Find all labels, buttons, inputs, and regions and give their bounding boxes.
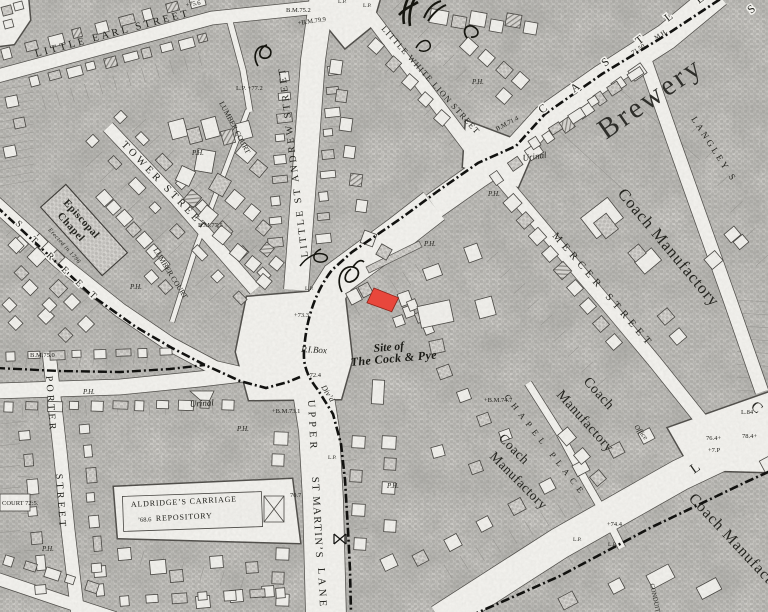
svg-text:B.M.77.5: B.M.77.5 xyxy=(198,222,223,229)
svg-text:P.H.: P.H. xyxy=(82,388,95,396)
svg-text:+74.4: +74.4 xyxy=(607,521,623,528)
svg-text:78.4+: 78.4+ xyxy=(742,433,757,440)
svg-text:L.P.: L.P. xyxy=(328,455,337,461)
svg-text:+B.M.74.7: +B.M.74.7 xyxy=(484,397,513,404)
svg-text:P.H.: P.H. xyxy=(471,78,484,86)
svg-text:P.I.Box: P.I.Box xyxy=(300,344,327,355)
svg-text:L.P.: L.P. xyxy=(608,542,617,548)
svg-text:COURT 72:5.: COURT 72:5. xyxy=(2,500,39,507)
svg-text:L.P. +77.2: L.P. +77.2 xyxy=(236,85,263,92)
svg-text:L.P.: L.P. xyxy=(573,537,582,543)
svg-text:LANE: LANE xyxy=(315,568,328,611)
svg-text:L.P.: L.P. xyxy=(338,0,347,5)
svg-text:P.H.: P.H. xyxy=(386,482,399,490)
svg-text:P.H.: P.H. xyxy=(129,283,142,291)
svg-text:L.84: L.84 xyxy=(741,409,754,416)
svg-text:L.P.: L.P. xyxy=(305,286,314,292)
svg-text:Urinal: Urinal xyxy=(189,397,214,409)
svg-text:P.H.: P.H. xyxy=(191,149,204,157)
svg-text:+72.4: +72.4 xyxy=(306,372,322,379)
svg-text:L.P.: L.P. xyxy=(363,3,372,9)
svg-text:P.H.: P.H. xyxy=(236,425,249,433)
svg-text:+B.M.73.1: +B.M.73.1 xyxy=(272,408,300,415)
svg-text:P.H.: P.H. xyxy=(41,545,54,553)
svg-text:70.7: 70.7 xyxy=(290,492,302,499)
svg-text:P.H.: P.H. xyxy=(423,240,436,248)
svg-text:B.M.75.2: B.M.75.2 xyxy=(286,7,311,14)
svg-text:+7.P: +7.P xyxy=(708,447,721,454)
svg-text:+73.3: +73.3 xyxy=(294,312,309,319)
svg-text:P.H.: P.H. xyxy=(487,190,500,198)
svg-text:B.M.75.0: B.M.75.0 xyxy=(30,352,55,359)
svg-text:’68.6: ’68.6 xyxy=(138,516,153,524)
svg-text:76.4+: 76.4+ xyxy=(706,435,721,442)
